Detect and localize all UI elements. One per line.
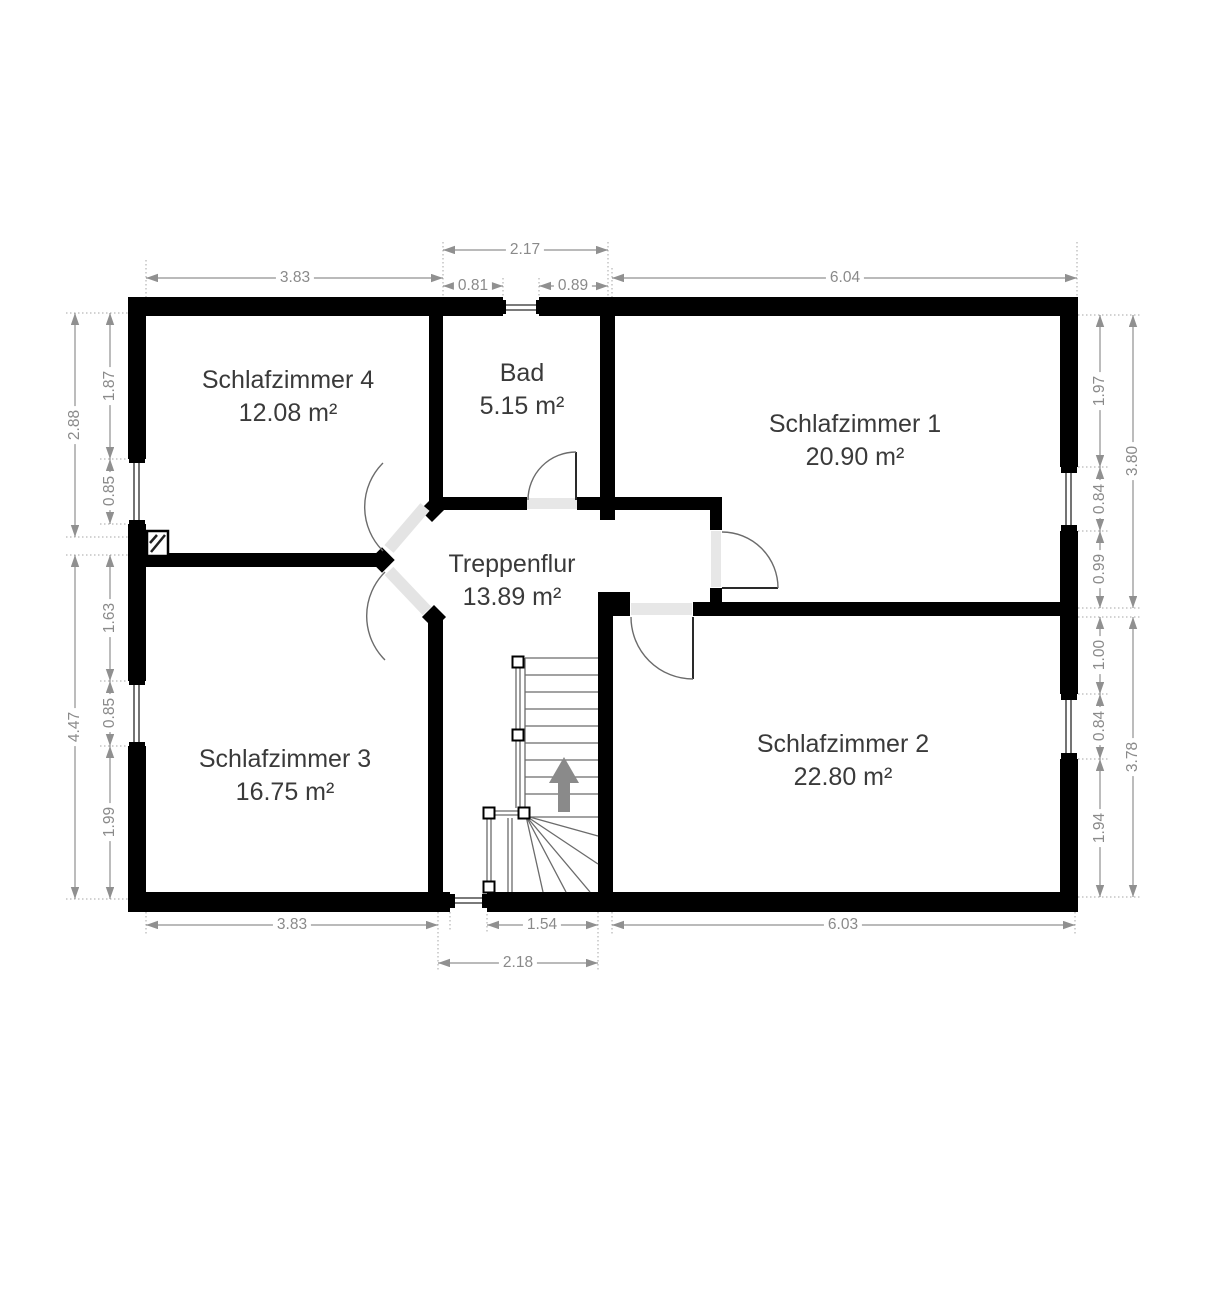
- dim-top-217: 2.17: [506, 241, 544, 259]
- room-area: 16.75 m²: [199, 776, 371, 809]
- staircase: [484, 657, 599, 893]
- room-name: Schlafzimmer 1: [769, 408, 941, 441]
- sz1-door-arc: [722, 532, 778, 588]
- room-area: 13.89 m²: [449, 581, 576, 614]
- sz4-door-arc: [365, 463, 383, 551]
- room-label-treppenflur: Treppenflur 13.89 m²: [449, 548, 576, 614]
- dim-right-100: 1.00: [1091, 636, 1109, 674]
- room-name: Treppenflur: [449, 548, 576, 581]
- dim-bottom-154: 1.54: [523, 916, 561, 934]
- bad-door-arc: [528, 452, 576, 500]
- floorplan-canvas: Schlafzimmer 4 12.08 m² Bad 5.15 m² Schl…: [0, 0, 1206, 1298]
- room-area: 12.08 m²: [202, 397, 374, 430]
- dim-top-081: 0.81: [454, 277, 492, 295]
- room-label-schlafzimmer-3: Schlafzimmer 3 16.75 m²: [199, 743, 371, 809]
- floorplan-drawing: [0, 0, 1206, 1298]
- room-name: Bad: [480, 357, 565, 390]
- room-name: Schlafzimmer 2: [757, 728, 929, 761]
- dim-right-380: 3.80: [1124, 442, 1142, 480]
- sz2-door-arc: [631, 617, 693, 679]
- dim-bottom-603: 6.03: [824, 916, 862, 934]
- stair-up-arrow: [549, 757, 579, 812]
- dim-right-378: 3.78: [1124, 738, 1142, 776]
- dim-right-099: 0.99: [1091, 550, 1109, 588]
- dim-top-089: 0.89: [554, 277, 592, 295]
- dim-left-447: 4.47: [66, 708, 84, 746]
- room-area: 22.80 m²: [757, 761, 929, 794]
- sz3-door-arc: [367, 572, 385, 660]
- room-label-schlafzimmer-2: Schlafzimmer 2 22.80 m²: [757, 728, 929, 794]
- dim-right-084b: 0.84: [1091, 707, 1109, 745]
- chimney: [147, 531, 168, 556]
- dim-right-197: 1.97: [1091, 372, 1109, 410]
- room-label-schlafzimmer-1: Schlafzimmer 1 20.90 m²: [769, 408, 941, 474]
- dim-left-163: 1.63: [101, 599, 119, 637]
- dim-left-187: 1.87: [101, 367, 119, 405]
- dim-top-604: 6.04: [826, 269, 864, 287]
- room-name: Schlafzimmer 3: [199, 743, 371, 776]
- room-label-bad: Bad 5.15 m²: [480, 357, 565, 423]
- dim-left-085b: 0.85: [101, 694, 119, 732]
- dim-bottom-383: 3.83: [273, 916, 311, 934]
- dim-left-085a: 0.85: [101, 472, 119, 510]
- room-area: 20.90 m²: [769, 441, 941, 474]
- room-label-schlafzimmer-4: Schlafzimmer 4 12.08 m²: [202, 364, 374, 430]
- room-name: Schlafzimmer 4: [202, 364, 374, 397]
- dim-right-084a: 0.84: [1091, 480, 1109, 518]
- dim-left-199: 1.99: [101, 803, 119, 841]
- dim-left-288: 2.88: [66, 406, 84, 444]
- dim-right-194: 1.94: [1091, 809, 1109, 847]
- room-area: 5.15 m²: [480, 390, 565, 423]
- dim-bottom-218: 2.18: [499, 954, 537, 972]
- dim-top-383: 3.83: [276, 269, 314, 287]
